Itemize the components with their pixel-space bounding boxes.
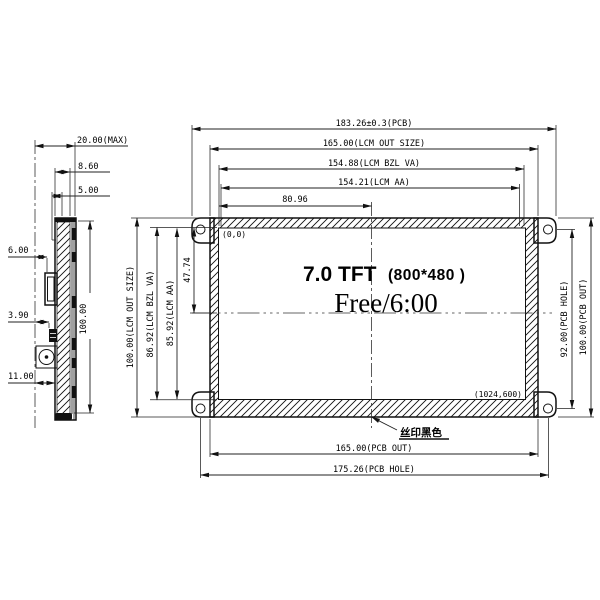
lcd-module-drawing: 20.00(MAX) 8.60 5.00 6.00 3.90 (0, 0, 600, 600)
dim-label: 92.00(PCB HOLE) (560, 281, 570, 358)
dim-bzl-va-height: 86.92(LCM BZL VA) (146, 228, 217, 401)
silkscreen-note: 丝印黑色 (372, 417, 450, 439)
front-view: (0,0) (1024,600) 7.0 TFT (800*480 ) Free… (126, 119, 594, 478)
side-body (55, 218, 76, 420)
dim-label: 100.00 (79, 304, 89, 335)
dim-label: 100.00(LCM OUT SIZE) (126, 266, 136, 368)
mounting-hole (196, 404, 205, 413)
dim-label: 80.96 (282, 195, 308, 205)
dim-label: 6.00 (8, 246, 28, 256)
note-text: 丝印黑色 (400, 426, 442, 439)
dim-half-aa: 80.96 (219, 195, 372, 206)
pcb-component (72, 358, 77, 368)
dim-label: 165.00(LCM OUT SIZE) (323, 139, 425, 149)
side-dim-thickness: 20.00(MAX) (35, 136, 128, 216)
side-dim-11-00: 11.00 (8, 372, 55, 383)
screen-resolution: (800*480 ) (388, 267, 465, 284)
side-buzzer (36, 346, 57, 368)
corner-label: (1024,600) (474, 390, 522, 399)
dim-label: 20.00(MAX) (77, 136, 128, 146)
dim-label: 85.92(LCM AA) (166, 280, 176, 347)
dim-label: 8.60 (78, 162, 98, 172)
side-dim-3-90: 3.90 (8, 311, 49, 328)
pcb-component (72, 228, 77, 240)
pcb-component (72, 338, 77, 350)
dim-label: 175.26(PCB HOLE) (333, 465, 415, 475)
screen-display-text: Free/6:00 (334, 288, 437, 318)
origin-label: (0,0) (222, 230, 246, 239)
dim-label: 154.21(LCM AA) (338, 178, 410, 188)
mounting-hole (196, 225, 205, 234)
side-bottom-cap (55, 413, 72, 420)
dim-aa-height: 85.92(LCM AA) (166, 229, 177, 400)
pcb-component (72, 296, 77, 308)
dim-pcb-out-width: 165.00(PCB OUT) (210, 419, 538, 457)
pcb-component (72, 386, 77, 398)
dim-label: 11.00 (8, 372, 34, 382)
dim-label: 47.74 (183, 257, 193, 283)
dim-label: 3.90 (8, 311, 28, 321)
mounting-hole (544, 225, 553, 234)
dim-pcb-hole-height: 92.00(PCB HOLE) (557, 230, 575, 409)
side-view: 20.00(MAX) 8.60 5.00 6.00 3.90 (8, 136, 128, 428)
mounting-hole (544, 404, 553, 413)
side-panel-hatch (57, 222, 70, 414)
side-dim-height: 100.00 (74, 221, 94, 413)
dim-label: 183.26±0.3(PCB) (336, 119, 413, 129)
side-connector-small (49, 329, 57, 342)
dim-label: 5.00 (78, 186, 98, 196)
side-dim-6-00: 6.00 (8, 246, 47, 272)
dim-label: 154.88(LCM BZL VA) (328, 159, 420, 169)
drawing-canvas: 20.00(MAX) 8.60 5.00 6.00 3.90 (0, 0, 600, 600)
dim-label: 100.00(PCB OUT) (579, 279, 589, 356)
screen-title: 7.0 TFT (303, 263, 377, 286)
dim-label: 86.92(LCM BZL VA) (146, 271, 156, 358)
dim-label: 165.00(PCB OUT) (336, 444, 413, 454)
pcb-component (72, 252, 77, 262)
